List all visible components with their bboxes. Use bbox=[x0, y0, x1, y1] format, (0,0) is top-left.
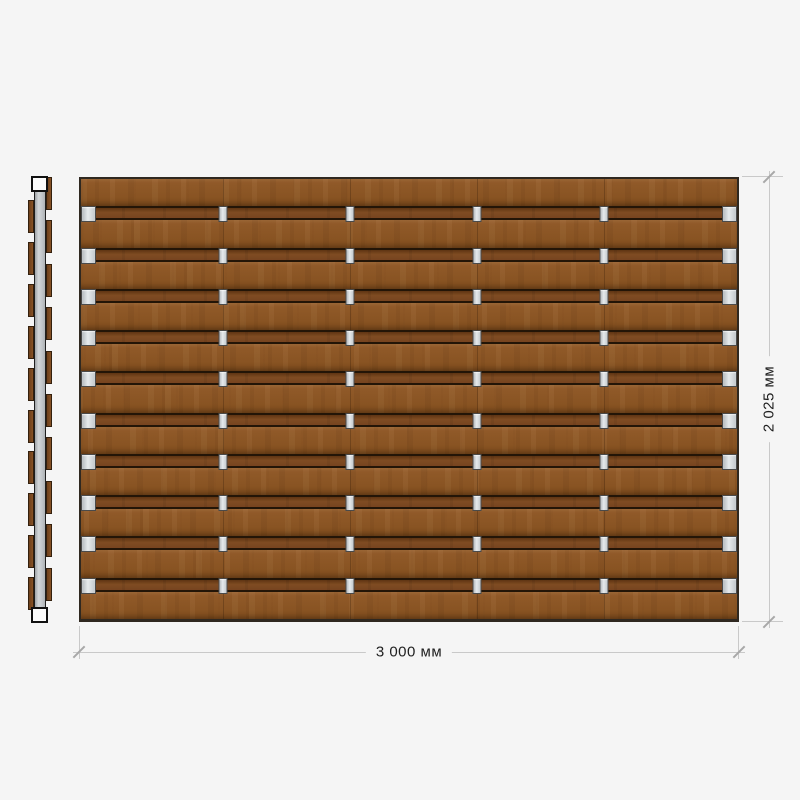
board-edge-front bbox=[46, 524, 52, 557]
mounting-clip bbox=[473, 454, 482, 470]
mounting-clip bbox=[473, 536, 482, 552]
mounting-clip bbox=[81, 413, 96, 429]
fence-post-profile bbox=[34, 190, 46, 609]
mounting-clip bbox=[722, 206, 737, 222]
mounting-clip bbox=[81, 289, 96, 305]
mounting-clip bbox=[473, 330, 482, 346]
board-edge-front bbox=[46, 394, 52, 427]
mounting-clip bbox=[81, 536, 96, 552]
mounting-clip bbox=[722, 536, 737, 552]
fence-board bbox=[81, 303, 737, 330]
fence-board bbox=[81, 385, 737, 412]
board-joint bbox=[350, 179, 351, 619]
mounting-clip bbox=[219, 413, 228, 429]
mounting-clip bbox=[219, 289, 228, 305]
mounting-clip bbox=[473, 578, 482, 594]
front-view bbox=[79, 177, 739, 622]
board-edge-front bbox=[46, 220, 52, 253]
fence-board bbox=[81, 592, 737, 619]
mounting-clip bbox=[722, 495, 737, 511]
height-dimension-label: 2 025 мм bbox=[759, 356, 780, 442]
mounting-clip bbox=[722, 413, 737, 429]
fence-board bbox=[81, 344, 737, 371]
mounting-clip bbox=[722, 330, 737, 346]
mounting-clip bbox=[599, 536, 608, 552]
mounting-clip bbox=[473, 248, 482, 264]
fence-board bbox=[81, 179, 737, 206]
mounting-clip bbox=[345, 413, 354, 429]
post-cap-bottom bbox=[31, 607, 48, 623]
mounting-clip bbox=[219, 371, 228, 387]
fence-board bbox=[81, 427, 737, 454]
mounting-clip bbox=[599, 413, 608, 429]
mounting-clip bbox=[473, 206, 482, 222]
extension-line-right-bottom bbox=[742, 621, 783, 622]
mounting-clip bbox=[473, 495, 482, 511]
board-gap bbox=[81, 413, 737, 427]
mounting-clip bbox=[473, 371, 482, 387]
mounting-clip bbox=[219, 454, 228, 470]
mounting-clip bbox=[722, 578, 737, 594]
board-gap bbox=[81, 371, 737, 385]
mounting-clip bbox=[81, 454, 96, 470]
board-gap bbox=[81, 248, 737, 262]
mounting-clip bbox=[599, 454, 608, 470]
mounting-clip bbox=[722, 289, 737, 305]
mounting-clip bbox=[81, 206, 96, 222]
mounting-clip bbox=[81, 248, 96, 264]
mounting-clip bbox=[219, 330, 228, 346]
extension-line-bottom-left bbox=[79, 626, 80, 659]
mounting-clip bbox=[345, 495, 354, 511]
board-gap bbox=[81, 206, 737, 220]
board-joint bbox=[604, 179, 605, 619]
board-edge-front bbox=[46, 264, 52, 297]
drawing-canvas: 3 000 мм 2 025 мм bbox=[0, 0, 800, 800]
fence-board bbox=[81, 262, 737, 289]
mounting-clip bbox=[599, 289, 608, 305]
mounting-clip bbox=[722, 454, 737, 470]
fence-board bbox=[81, 220, 737, 247]
mounting-clip bbox=[219, 536, 228, 552]
mounting-clip bbox=[599, 330, 608, 346]
mounting-clip bbox=[81, 330, 96, 346]
mounting-clip bbox=[599, 206, 608, 222]
mounting-clip bbox=[345, 330, 354, 346]
extension-line-top-right bbox=[742, 176, 783, 177]
board-joint bbox=[223, 179, 224, 619]
mounting-clip bbox=[345, 578, 354, 594]
fence-board bbox=[81, 468, 737, 495]
width-dimension-label: 3 000 мм bbox=[366, 642, 452, 663]
board-joint bbox=[477, 179, 478, 619]
board-gap bbox=[81, 578, 737, 592]
board-gap bbox=[81, 495, 737, 509]
board-gap bbox=[81, 536, 737, 550]
mounting-clip bbox=[81, 578, 96, 594]
mounting-clip bbox=[81, 371, 96, 387]
mounting-clip bbox=[473, 413, 482, 429]
board-gap bbox=[81, 289, 737, 303]
mounting-clip bbox=[219, 248, 228, 264]
mounting-clip bbox=[345, 289, 354, 305]
mounting-clip bbox=[345, 536, 354, 552]
board-edge-front bbox=[46, 351, 52, 384]
mounting-clip bbox=[219, 495, 228, 511]
mounting-clip bbox=[599, 371, 608, 387]
fence-board bbox=[81, 509, 737, 536]
fence-board bbox=[81, 550, 737, 577]
board-gap bbox=[81, 454, 737, 468]
board-edge-front bbox=[46, 437, 52, 470]
mounting-clip bbox=[473, 289, 482, 305]
mounting-clip bbox=[599, 495, 608, 511]
mounting-clip bbox=[219, 578, 228, 594]
mounting-clip bbox=[345, 454, 354, 470]
mounting-clip bbox=[599, 248, 608, 264]
mounting-clip bbox=[722, 371, 737, 387]
mounting-clip bbox=[81, 495, 96, 511]
board-edge-front bbox=[46, 307, 52, 340]
board-edge-front bbox=[46, 481, 52, 514]
board-edge-front bbox=[46, 568, 52, 601]
post-cap-top bbox=[31, 176, 48, 192]
mounting-clip bbox=[599, 578, 608, 594]
mounting-clip bbox=[345, 371, 354, 387]
mounting-clip bbox=[219, 206, 228, 222]
mounting-clip bbox=[722, 248, 737, 264]
side-view bbox=[28, 176, 52, 623]
mounting-clip bbox=[345, 248, 354, 264]
board-gap bbox=[81, 330, 737, 344]
mounting-clip bbox=[345, 206, 354, 222]
